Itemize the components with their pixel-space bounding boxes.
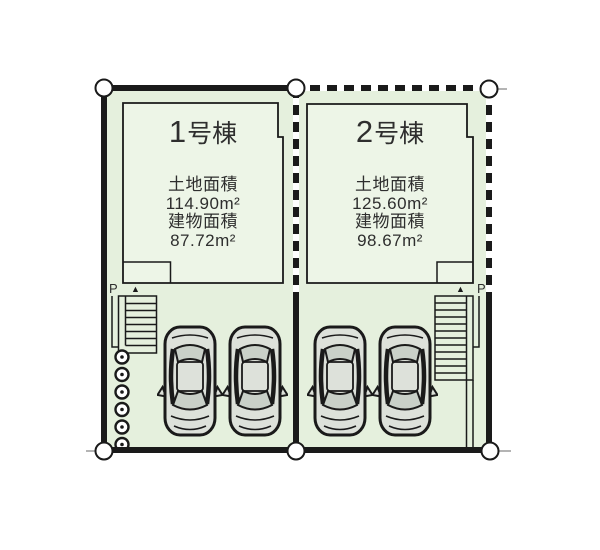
lot-2-areas: 土地面積 125.60m² 建物面積 98.67m² bbox=[307, 176, 473, 250]
stairs-left-icon bbox=[112, 296, 157, 353]
building-area-label: 建物面積 bbox=[307, 213, 473, 232]
boundary-marker-icon bbox=[480, 80, 499, 99]
boundary-marker-icon bbox=[95, 79, 114, 98]
boundary-marker-icon bbox=[481, 442, 500, 461]
car-icon bbox=[372, 325, 438, 437]
car-icon bbox=[307, 325, 373, 437]
boundary-marker-icon bbox=[287, 442, 306, 461]
land-area-label: 土地面積 bbox=[307, 176, 473, 195]
land-area-label: 土地面積 bbox=[123, 176, 283, 195]
car-icon bbox=[222, 325, 288, 437]
utility-marker-icons bbox=[116, 351, 129, 452]
boundary-left bbox=[101, 85, 107, 455]
lot-2-suffix: 号棟 bbox=[374, 120, 424, 148]
parking-label: P bbox=[477, 281, 486, 296]
stairs-right-icon bbox=[435, 296, 479, 447]
entrance-arrow-icon: ▲ bbox=[456, 284, 465, 294]
lot-1-areas: 土地面積 114.90m² 建物面積 87.72m² bbox=[123, 176, 283, 250]
parking-label: P bbox=[109, 281, 118, 296]
boundary-top-lot1 bbox=[101, 85, 299, 91]
lot-1-number: 1 bbox=[169, 114, 187, 149]
building-area-value: 98.67m² bbox=[307, 232, 473, 251]
lot-1-suffix: 号棟 bbox=[187, 120, 237, 148]
boundary-middle-solid bbox=[293, 300, 299, 450]
land-area-value: 125.60m² bbox=[307, 195, 473, 214]
lot-1-title: 1号棟 bbox=[123, 114, 283, 150]
land-area-value: 114.90m² bbox=[123, 195, 283, 214]
boundary-right-solid bbox=[486, 298, 492, 450]
boundary-right-dashed bbox=[486, 88, 492, 300]
walkway-rail bbox=[467, 380, 474, 447]
boundary-marker-icon bbox=[287, 79, 306, 98]
lot-2-title: 2号棟 bbox=[307, 114, 473, 150]
boundary-top-lot2-dashed bbox=[293, 85, 492, 91]
site-plan-canvas: 1号棟 土地面積 114.90m² 建物面積 87.72m² P ▲ 2号棟 土… bbox=[0, 0, 600, 550]
building-area-value: 87.72m² bbox=[123, 232, 283, 251]
boundary-middle-dashed bbox=[293, 88, 299, 302]
car-icon bbox=[157, 325, 223, 437]
lot-2-number: 2 bbox=[356, 114, 374, 149]
entrance-arrow-icon: ▲ bbox=[131, 284, 140, 294]
boundary-marker-icon bbox=[95, 442, 114, 461]
building-area-label: 建物面積 bbox=[123, 213, 283, 232]
